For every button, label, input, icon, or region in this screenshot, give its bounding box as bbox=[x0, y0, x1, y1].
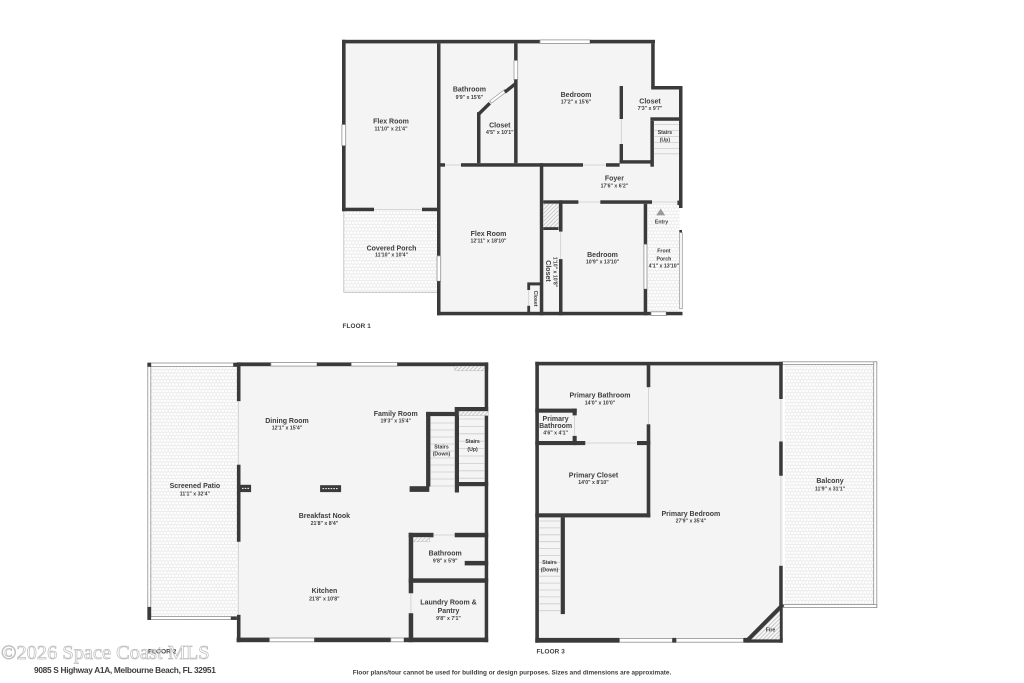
svg-text:9'9" x 15'6": 9'9" x 15'6" bbox=[456, 95, 484, 101]
svg-text:Closet: Closet bbox=[532, 291, 538, 307]
svg-text:1'10" x 10'8": 1'10" x 10'8" bbox=[552, 257, 558, 288]
svg-text:11'1" x 32'4": 11'1" x 32'4" bbox=[180, 491, 211, 497]
svg-text:17'2" x 15'6": 17'2" x 15'6" bbox=[561, 99, 592, 105]
svg-text:12'1" x 15'4": 12'1" x 15'4" bbox=[272, 426, 303, 432]
svg-text:FLOOR 3: FLOOR 3 bbox=[537, 649, 566, 656]
svg-text:Bathroom: Bathroom bbox=[453, 87, 486, 94]
svg-text:21'8" x 10'8": 21'8" x 10'8" bbox=[309, 596, 340, 602]
svg-text:Floor plans/tour cannot be use: Floor plans/tour cannot be used for buil… bbox=[353, 670, 672, 677]
svg-text:12'11" x 18'10": 12'11" x 18'10" bbox=[471, 239, 507, 245]
svg-text:Bathroom: Bathroom bbox=[429, 551, 462, 558]
svg-text:Stairs: Stairs bbox=[434, 444, 449, 450]
svg-text:Entry: Entry bbox=[655, 220, 668, 226]
svg-text:4'6" x 4'1": 4'6" x 4'1" bbox=[543, 430, 568, 436]
svg-text:21'8" x 8'4": 21'8" x 8'4" bbox=[311, 521, 339, 527]
svg-text:Stairs: Stairs bbox=[542, 560, 557, 566]
svg-text:Stairs: Stairs bbox=[465, 439, 480, 445]
svg-text:11'9" x 31'1": 11'9" x 31'1" bbox=[815, 486, 846, 492]
svg-text:Front: Front bbox=[657, 249, 671, 255]
svg-text:Dining Room: Dining Room bbox=[265, 418, 309, 425]
svg-text:(Down): (Down) bbox=[433, 452, 451, 458]
svg-text:11'10" x 21'4": 11'10" x 21'4" bbox=[374, 126, 408, 132]
svg-text:Family Room: Family Room bbox=[374, 411, 418, 418]
svg-text:Closet: Closet bbox=[639, 98, 661, 105]
svg-text:Primary: Primary bbox=[543, 416, 569, 423]
svg-text:Kitchen: Kitchen bbox=[312, 588, 338, 595]
svg-text:Balcony: Balcony bbox=[816, 478, 843, 485]
svg-text:9'8" x 7'1": 9'8" x 7'1" bbox=[436, 616, 461, 622]
svg-text:Flex Room: Flex Room bbox=[373, 119, 409, 126]
svg-text:Screened Patio: Screened Patio bbox=[170, 483, 221, 490]
svg-text:Bedroom: Bedroom bbox=[561, 92, 592, 99]
svg-text:Stairs: Stairs bbox=[658, 130, 673, 136]
svg-text:©2026 Space Coast MLS: ©2026 Space Coast MLS bbox=[1, 642, 210, 664]
svg-text:Fire: Fire bbox=[766, 628, 776, 634]
svg-text:Bathroom: Bathroom bbox=[539, 423, 572, 430]
svg-text:11'10" x 10'4": 11'10" x 10'4" bbox=[375, 253, 409, 259]
svg-text:(Up): (Up) bbox=[660, 137, 671, 143]
svg-text:Primary Closet: Primary Closet bbox=[569, 472, 619, 479]
svg-text:4'1" x 13'10": 4'1" x 13'10" bbox=[649, 264, 680, 270]
svg-text:Foyer: Foyer bbox=[605, 176, 624, 183]
svg-text:9085 S Highway A1A, Melbourne: 9085 S Highway A1A, Melbourne Beach, FL … bbox=[34, 665, 216, 675]
svg-text:Closet: Closet bbox=[489, 123, 511, 130]
svg-text:Flex Room: Flex Room bbox=[471, 231, 507, 238]
svg-text:Primary Bedroom: Primary Bedroom bbox=[662, 511, 721, 518]
svg-text:(Down): (Down) bbox=[541, 567, 559, 573]
svg-text:Breakfast Nook: Breakfast Nook bbox=[299, 513, 350, 520]
svg-text:7'3" x 9'7": 7'3" x 9'7" bbox=[638, 106, 663, 112]
svg-text:9'8" x 5'9": 9'8" x 5'9" bbox=[433, 559, 458, 565]
svg-text:27'9" x 35'4": 27'9" x 35'4" bbox=[676, 518, 707, 524]
svg-text:17'6" x 6'2": 17'6" x 6'2" bbox=[601, 183, 629, 189]
svg-text:Closet: Closet bbox=[544, 260, 551, 282]
svg-text:14'0" x 8'10": 14'0" x 8'10" bbox=[578, 480, 609, 486]
svg-text:(Up): (Up) bbox=[467, 447, 478, 453]
svg-text:Bedroom: Bedroom bbox=[587, 252, 618, 259]
svg-text:Pantry: Pantry bbox=[438, 608, 460, 615]
svg-text:Primary Bathroom: Primary Bathroom bbox=[569, 393, 630, 400]
svg-text:14'0" x 10'0": 14'0" x 10'0" bbox=[585, 401, 616, 407]
svg-text:4'5" x 10'1": 4'5" x 10'1" bbox=[486, 130, 514, 136]
svg-text:19'3" x 15'4": 19'3" x 15'4" bbox=[380, 419, 411, 425]
svg-text:10'9" x 13'10": 10'9" x 13'10" bbox=[586, 260, 620, 266]
svg-text:Laundry Room &: Laundry Room & bbox=[420, 600, 476, 607]
svg-text:FLOOR 1: FLOOR 1 bbox=[343, 323, 372, 330]
svg-text:Covered Porch: Covered Porch bbox=[367, 245, 417, 252]
svg-text:Porch: Porch bbox=[657, 257, 672, 263]
